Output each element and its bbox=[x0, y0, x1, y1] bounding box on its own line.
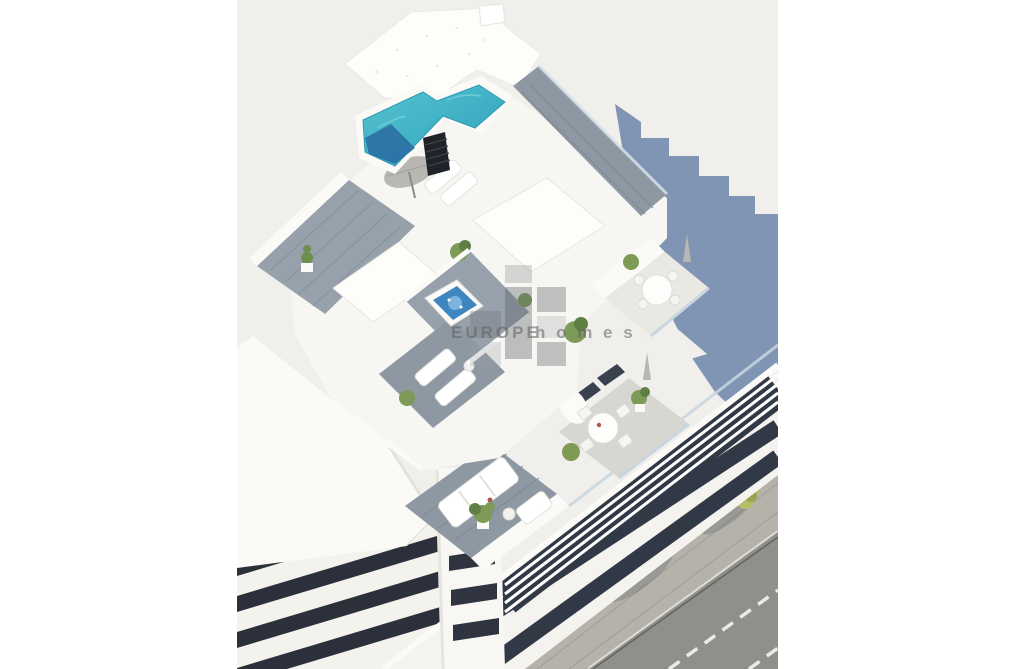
watermark-text: EUROPEh o m e s bbox=[451, 323, 636, 342]
decor-bowl bbox=[488, 498, 493, 503]
round-table bbox=[588, 413, 618, 443]
roof-slab bbox=[345, 8, 541, 100]
building-render: EUROPEh o m e s bbox=[237, 0, 778, 669]
plant-pot bbox=[301, 263, 313, 272]
photo-canvas: EUROPEh o m e s bbox=[237, 0, 778, 669]
side-table bbox=[503, 508, 515, 520]
roof-chimney bbox=[479, 4, 505, 26]
render-stage: EUROPEh o m e s bbox=[0, 0, 1020, 669]
terrace-plant bbox=[623, 254, 639, 270]
table-decor bbox=[597, 423, 601, 427]
